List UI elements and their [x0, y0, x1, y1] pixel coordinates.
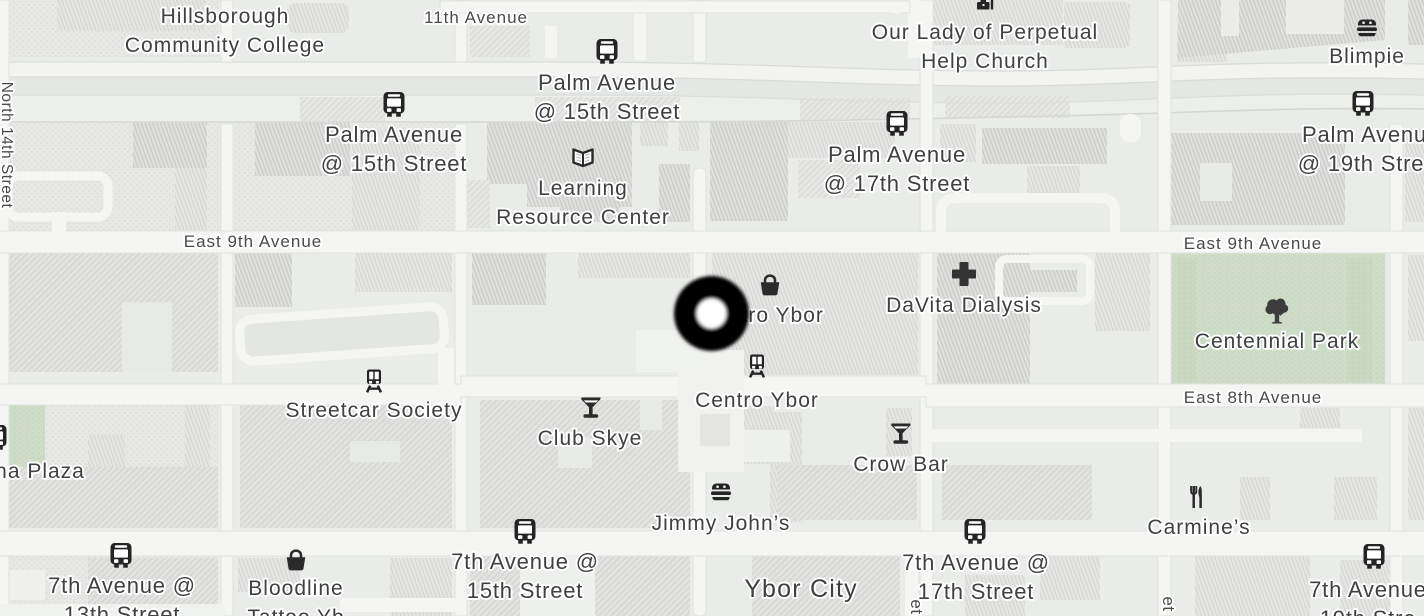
svg-text:7th Avenue @: 7th Avenue @	[451, 549, 599, 574]
svg-text:Ybor City: Ybor City	[744, 575, 858, 603]
svg-text:@ 15th Street: @ 15th Street	[534, 99, 680, 124]
svg-text:@ 19th Street: @ 19th Street	[1298, 151, 1424, 176]
svg-text:Community College: Community College	[125, 34, 325, 57]
svg-text:13th Street: 13th Street	[64, 602, 180, 616]
svg-text:Our Lady of Perpetual: Our Lady of Perpetual	[872, 21, 1098, 44]
svg-text:Blimpie: Blimpie	[1329, 45, 1405, 68]
svg-text:Carmine’s: Carmine’s	[1147, 516, 1250, 539]
svg-text:Jimmy John’s: Jimmy John’s	[652, 512, 791, 535]
svg-text:Bloodline: Bloodline	[248, 577, 343, 600]
svg-text:Help Church: Help Church	[921, 50, 1049, 73]
svg-text:Crow Bar: Crow Bar	[853, 453, 949, 476]
svg-text:Palm Avenue: Palm Avenue	[1302, 122, 1424, 147]
svg-text:East 9th Avenue: East 9th Avenue	[1184, 234, 1323, 253]
svg-text:@ 15th Street: @ 15th Street	[321, 151, 467, 176]
svg-text:Learning: Learning	[538, 177, 628, 200]
svg-text:ha Plaza: ha Plaza	[0, 460, 85, 483]
svg-text:7th Avenue @: 7th Avenue @	[48, 573, 196, 598]
svg-text:Palm Avenue: Palm Avenue	[538, 70, 676, 95]
svg-text:Club Skye: Club Skye	[538, 427, 643, 450]
svg-text:North 14th Street: North 14th Street	[0, 82, 15, 209]
svg-text:DaVita Dialysis: DaVita Dialysis	[886, 294, 1042, 317]
svg-text:@ 17th Street: @ 17th Street	[824, 171, 970, 196]
svg-text:Hillsborough: Hillsborough	[161, 5, 290, 28]
svg-text:Streetcar Society: Streetcar Society	[286, 399, 463, 422]
svg-text:17th Street: 17th Street	[918, 579, 1034, 604]
svg-text:Resource Center: Resource Center	[496, 206, 670, 229]
svg-text:15th Street: 15th Street	[467, 578, 583, 603]
svg-text:East 9th Avenue: East 9th Avenue	[184, 232, 323, 251]
svg-text:7th Avenue: 7th Avenue	[1309, 577, 1424, 602]
svg-text:Palm Avenue: Palm Avenue	[325, 122, 463, 147]
svg-text:Centro Ybor: Centro Ybor	[695, 389, 819, 412]
svg-text:Tattoo Yb: Tattoo Yb	[247, 606, 344, 616]
svg-text:East 8th Avenue: East 8th Avenue	[1184, 388, 1323, 407]
svg-text:Centennial Park: Centennial Park	[1195, 330, 1359, 353]
svg-text:et: et	[1159, 596, 1178, 611]
svg-text:19th Stre: 19th Stre	[1320, 606, 1416, 616]
svg-text:Palm Avenue: Palm Avenue	[828, 142, 966, 167]
svg-text:11th Avenue: 11th Avenue	[424, 8, 528, 27]
svg-text:7th Avenue @: 7th Avenue @	[902, 550, 1050, 575]
